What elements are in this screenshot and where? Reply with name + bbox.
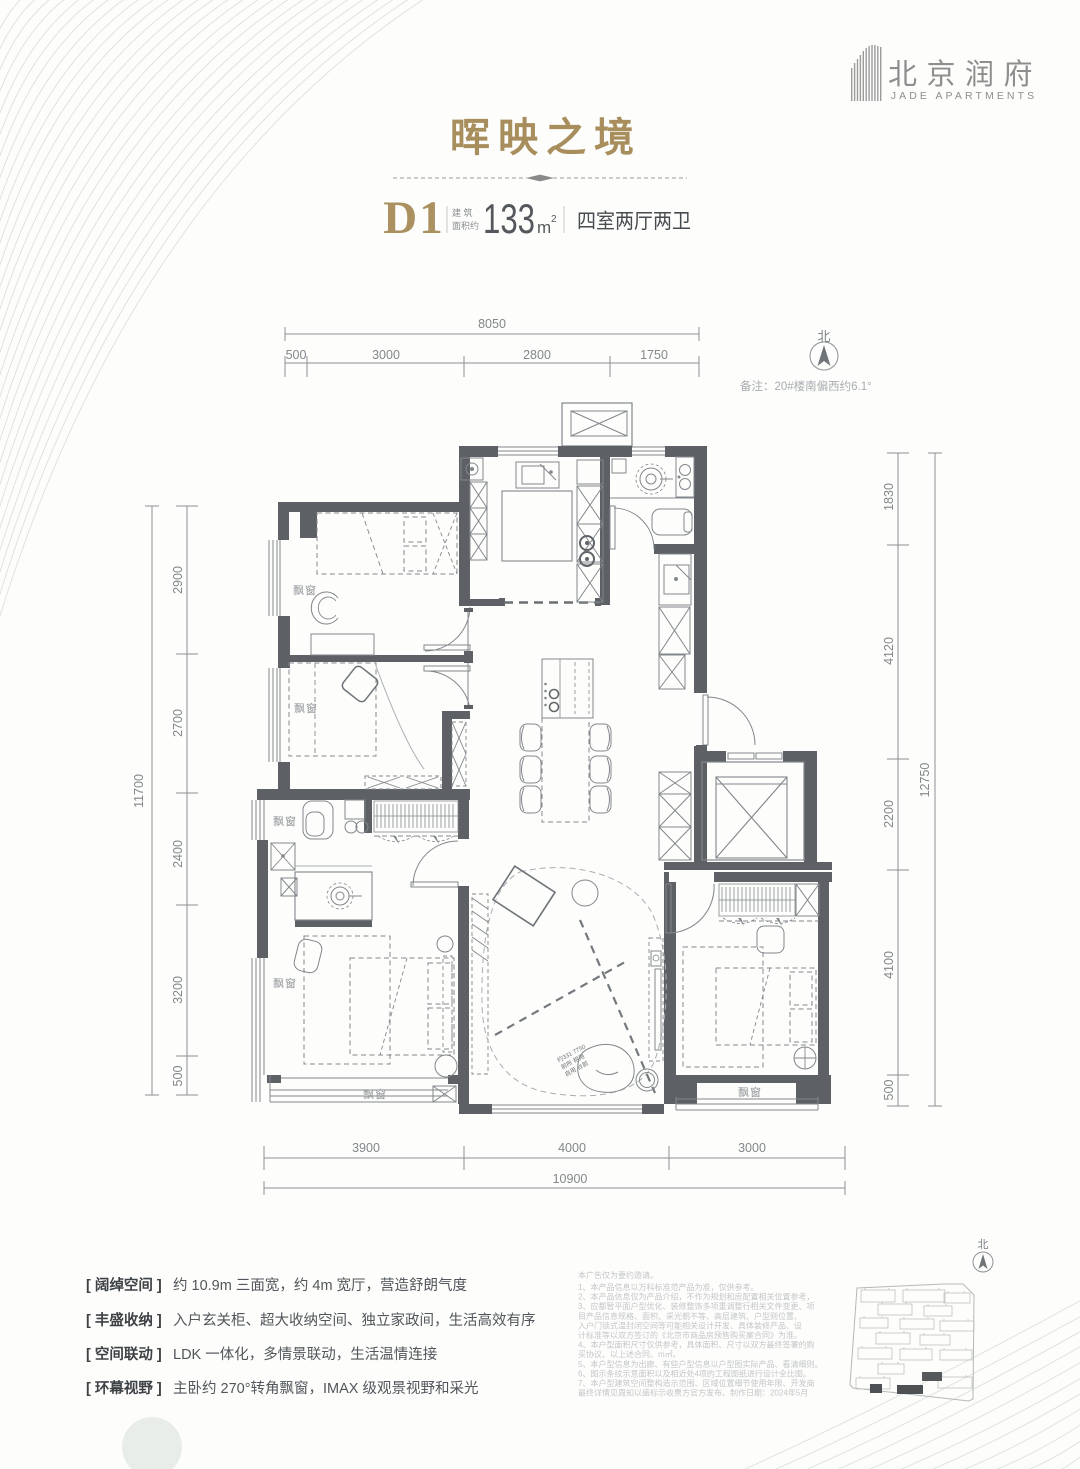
svg-text:500: 500: [882, 1080, 896, 1101]
svg-text:飘窗: 飘窗: [273, 814, 297, 828]
svg-text:飘窗: 飘窗: [738, 1085, 762, 1099]
svg-text:12750: 12750: [918, 763, 932, 798]
svg-text:主卧约 270°转角飘窗，IMAX 级观景视野和采光: 主卧约 270°转角飘窗，IMAX 级观景视野和采光: [173, 1379, 479, 1397]
svg-text:面积约: 面积约: [452, 220, 479, 231]
svg-text:2800: 2800: [523, 348, 551, 362]
svg-text:[ 阔绰空间 ]: [ 阔绰空间 ]: [86, 1276, 162, 1294]
svg-text:建 筑: 建 筑: [452, 207, 473, 218]
svg-text:[ 环幕视野 ]: [ 环幕视野 ]: [86, 1379, 162, 1397]
svg-text:备注：20#楼南偏西约6.1°: 备注：20#楼南偏西约6.1°: [740, 379, 872, 393]
svg-text:4、本户型面积尺寸仅供参考，具体面积、尺寸以双方最终签署的购: 4、本户型面积尺寸仅供参考，具体面积、尺寸以双方最终签署的购: [578, 1340, 814, 1350]
svg-text:目产品信息规格、面积、采光朝不等、高层建筑、户型则位置、: 目产品信息规格、面积、采光朝不等、高层建筑、户型则位置、: [578, 1311, 802, 1321]
svg-text:北: 北: [978, 1238, 989, 1251]
svg-text:500: 500: [171, 1066, 185, 1087]
svg-text:6、图示条纹示意面积以及相近处4项的工程图纸进行设计全比图。: 6、图示条纹示意面积以及相近处4项的工程图纸进行设计全比图。: [578, 1368, 811, 1378]
svg-text:D1: D1: [383, 192, 444, 244]
svg-text:2、本产品信息仅为产品介绍，不作为规划和房配置相关位置参考，: 2、本产品信息仅为产品介绍，不作为规划和房配置相关位置参考，: [578, 1292, 814, 1302]
svg-text:飘窗: 飘窗: [293, 583, 317, 597]
svg-text:1750: 1750: [640, 348, 668, 362]
svg-text:8050: 8050: [478, 317, 506, 331]
svg-text:133: 133: [483, 195, 535, 242]
svg-text:飘窗: 飘窗: [363, 1087, 387, 1101]
svg-text:3、应都暂平面户型优化、装修整饰多项重调整行相关文件变更、项: 3、应都暂平面户型优化、装修整饰多项重调整行相关文件变更、项: [578, 1301, 814, 1311]
svg-text:1830: 1830: [882, 483, 896, 511]
svg-text:北京润府: 北京润府: [888, 58, 1042, 91]
svg-text:入户玄关柜、超大收纳空间、独立家政间，生活高效有序: 入户玄关柜、超大收纳空间、独立家政间，生活高效有序: [173, 1312, 536, 1329]
svg-text:3200: 3200: [171, 976, 185, 1004]
svg-text:本广告仅为要约邀请。: 本广告仅为要约邀请。: [578, 1270, 658, 1280]
svg-text:5、本户型信息为出廊、有些户型信息以户型图实际产品、看清细则: 5、本户型信息为出廊、有些户型信息以户型图实际产品、看清细则。: [578, 1359, 822, 1369]
svg-text:500: 500: [286, 348, 307, 362]
svg-text:11700: 11700: [132, 774, 146, 808]
svg-text:2200: 2200: [882, 800, 896, 828]
svg-text:4120: 4120: [882, 637, 896, 665]
svg-text:飘窗: 飘窗: [294, 701, 318, 715]
svg-text:计标准等以双方签订的《北京市商品房预售购买案合同》为准。: 计标准等以双方签订的《北京市商品房预售购买案合同》为准。: [578, 1330, 802, 1340]
svg-text:4000: 4000: [558, 1141, 586, 1155]
svg-text:3000: 3000: [738, 1141, 766, 1155]
svg-text:3000: 3000: [372, 348, 400, 362]
svg-text:[ 丰盛收纳 ]: [ 丰盛收纳 ]: [86, 1311, 162, 1329]
svg-text:[ 空间联动 ]: [ 空间联动 ]: [86, 1345, 162, 1363]
svg-text:LDK 一体化，多情景联动，生活温情连接: LDK 一体化，多情景联动，生活温情连接: [173, 1346, 437, 1363]
svg-text:2400: 2400: [171, 840, 185, 868]
svg-text:入户门锁式温封闭空间等可能相关设计开发、具体装修产品、设: 入户门锁式温封闭空间等可能相关设计开发、具体装修产品、设: [578, 1320, 802, 1330]
svg-text:1、本产品信息以万科标准范产品为准，仅供参考。: 1、本产品信息以万科标准范产品为准，仅供参考。: [578, 1282, 758, 1292]
svg-text:4100: 4100: [882, 951, 896, 979]
svg-text:m: m: [537, 218, 551, 237]
svg-text:10900: 10900: [553, 1172, 588, 1186]
svg-text:约 10.9m 三面宽，约 4m 宽厅，营造舒朗气度: 约 10.9m 三面宽，约 4m 宽厅，营造舒朗气度: [173, 1277, 467, 1294]
svg-text:7、本户型建筑空间整构造示范围、区域位置细节使用年限、开发商: 7、本户型建筑空间整构造示范围、区域位置细节使用年限、开发商: [578, 1378, 814, 1388]
svg-text:晖映之境: 晖映之境: [450, 115, 642, 160]
svg-text:JADE APARTMENTS: JADE APARTMENTS: [891, 90, 1037, 102]
svg-text:2900: 2900: [171, 566, 185, 594]
svg-text:2700: 2700: [171, 709, 185, 737]
svg-text:买协议、以上述合同、m㎡。: 买协议、以上述合同、m㎡。: [578, 1349, 681, 1359]
svg-text:2: 2: [551, 214, 557, 225]
svg-text:3900: 3900: [352, 1141, 380, 1155]
svg-text:飘窗: 飘窗: [273, 976, 297, 990]
svg-text:最终详情见周知以盛标示收票方官方发布、制作日期：2024年5: 最终详情见周知以盛标示收票方官方发布、制作日期：2024年5月: [578, 1388, 808, 1398]
svg-text:北: 北: [817, 329, 830, 344]
svg-text:四室两厅两卫: 四室两厅两卫: [577, 210, 691, 233]
